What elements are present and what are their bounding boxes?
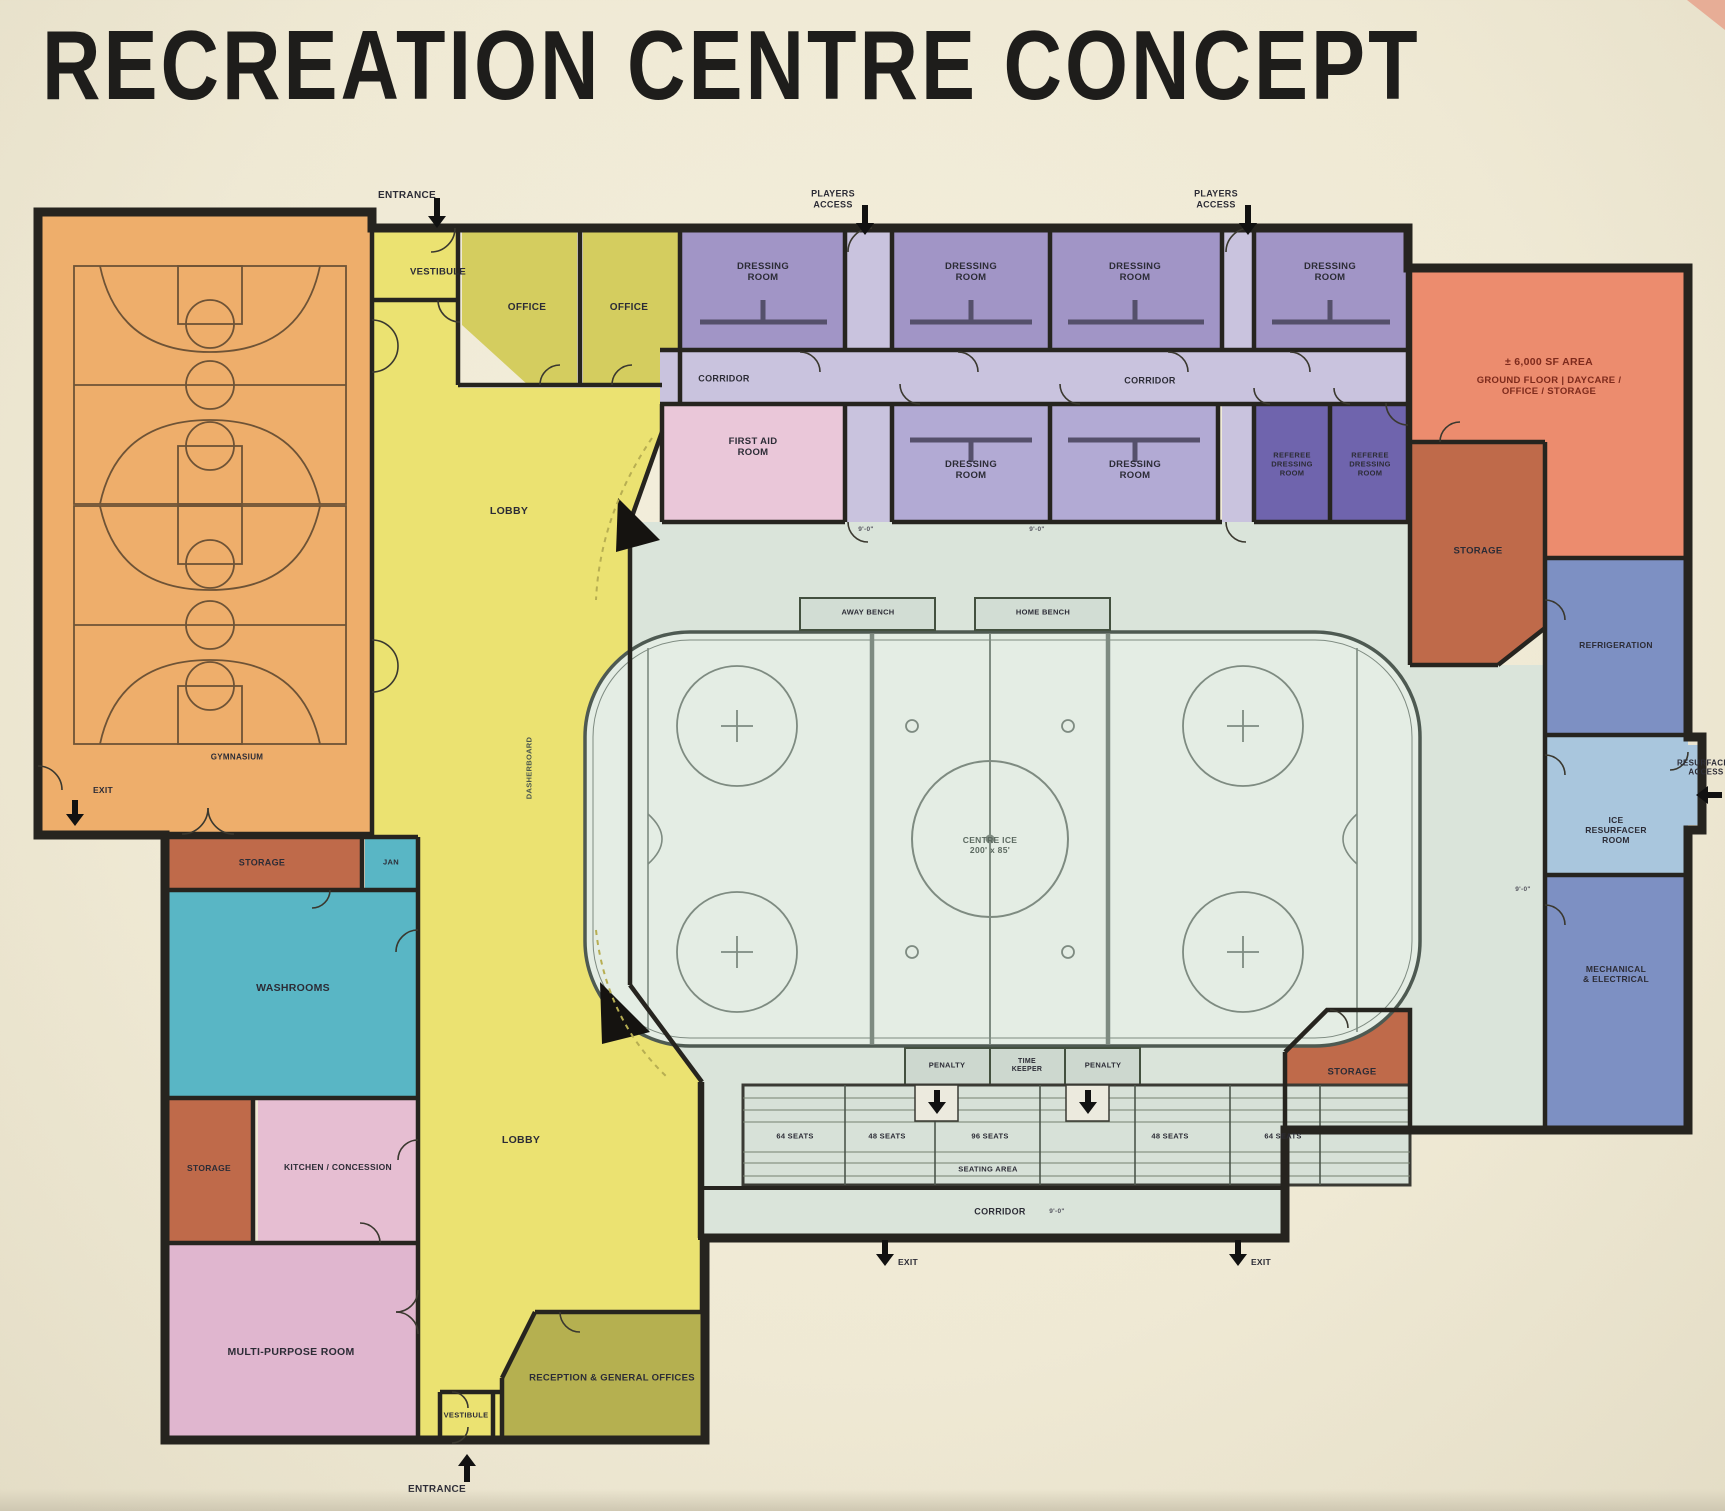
- home-bench: [975, 598, 1110, 630]
- penalty-boxes: [905, 1048, 1140, 1085]
- south-corridor: [700, 1188, 1285, 1238]
- poster: RECREATION CENTRE CONCEPT: [0, 0, 1725, 1511]
- floor-plan: [0, 0, 1725, 1511]
- photo-bottom-shade: [0, 1489, 1725, 1511]
- entrance-arrow-bottom: [458, 1454, 476, 1482]
- bleachers: [700, 1085, 1410, 1238]
- exit-arrow-2: [1229, 1240, 1247, 1266]
- exit-arrow-1: [876, 1240, 894, 1266]
- ice-rink: [585, 598, 1420, 1085]
- away-bench: [800, 598, 935, 630]
